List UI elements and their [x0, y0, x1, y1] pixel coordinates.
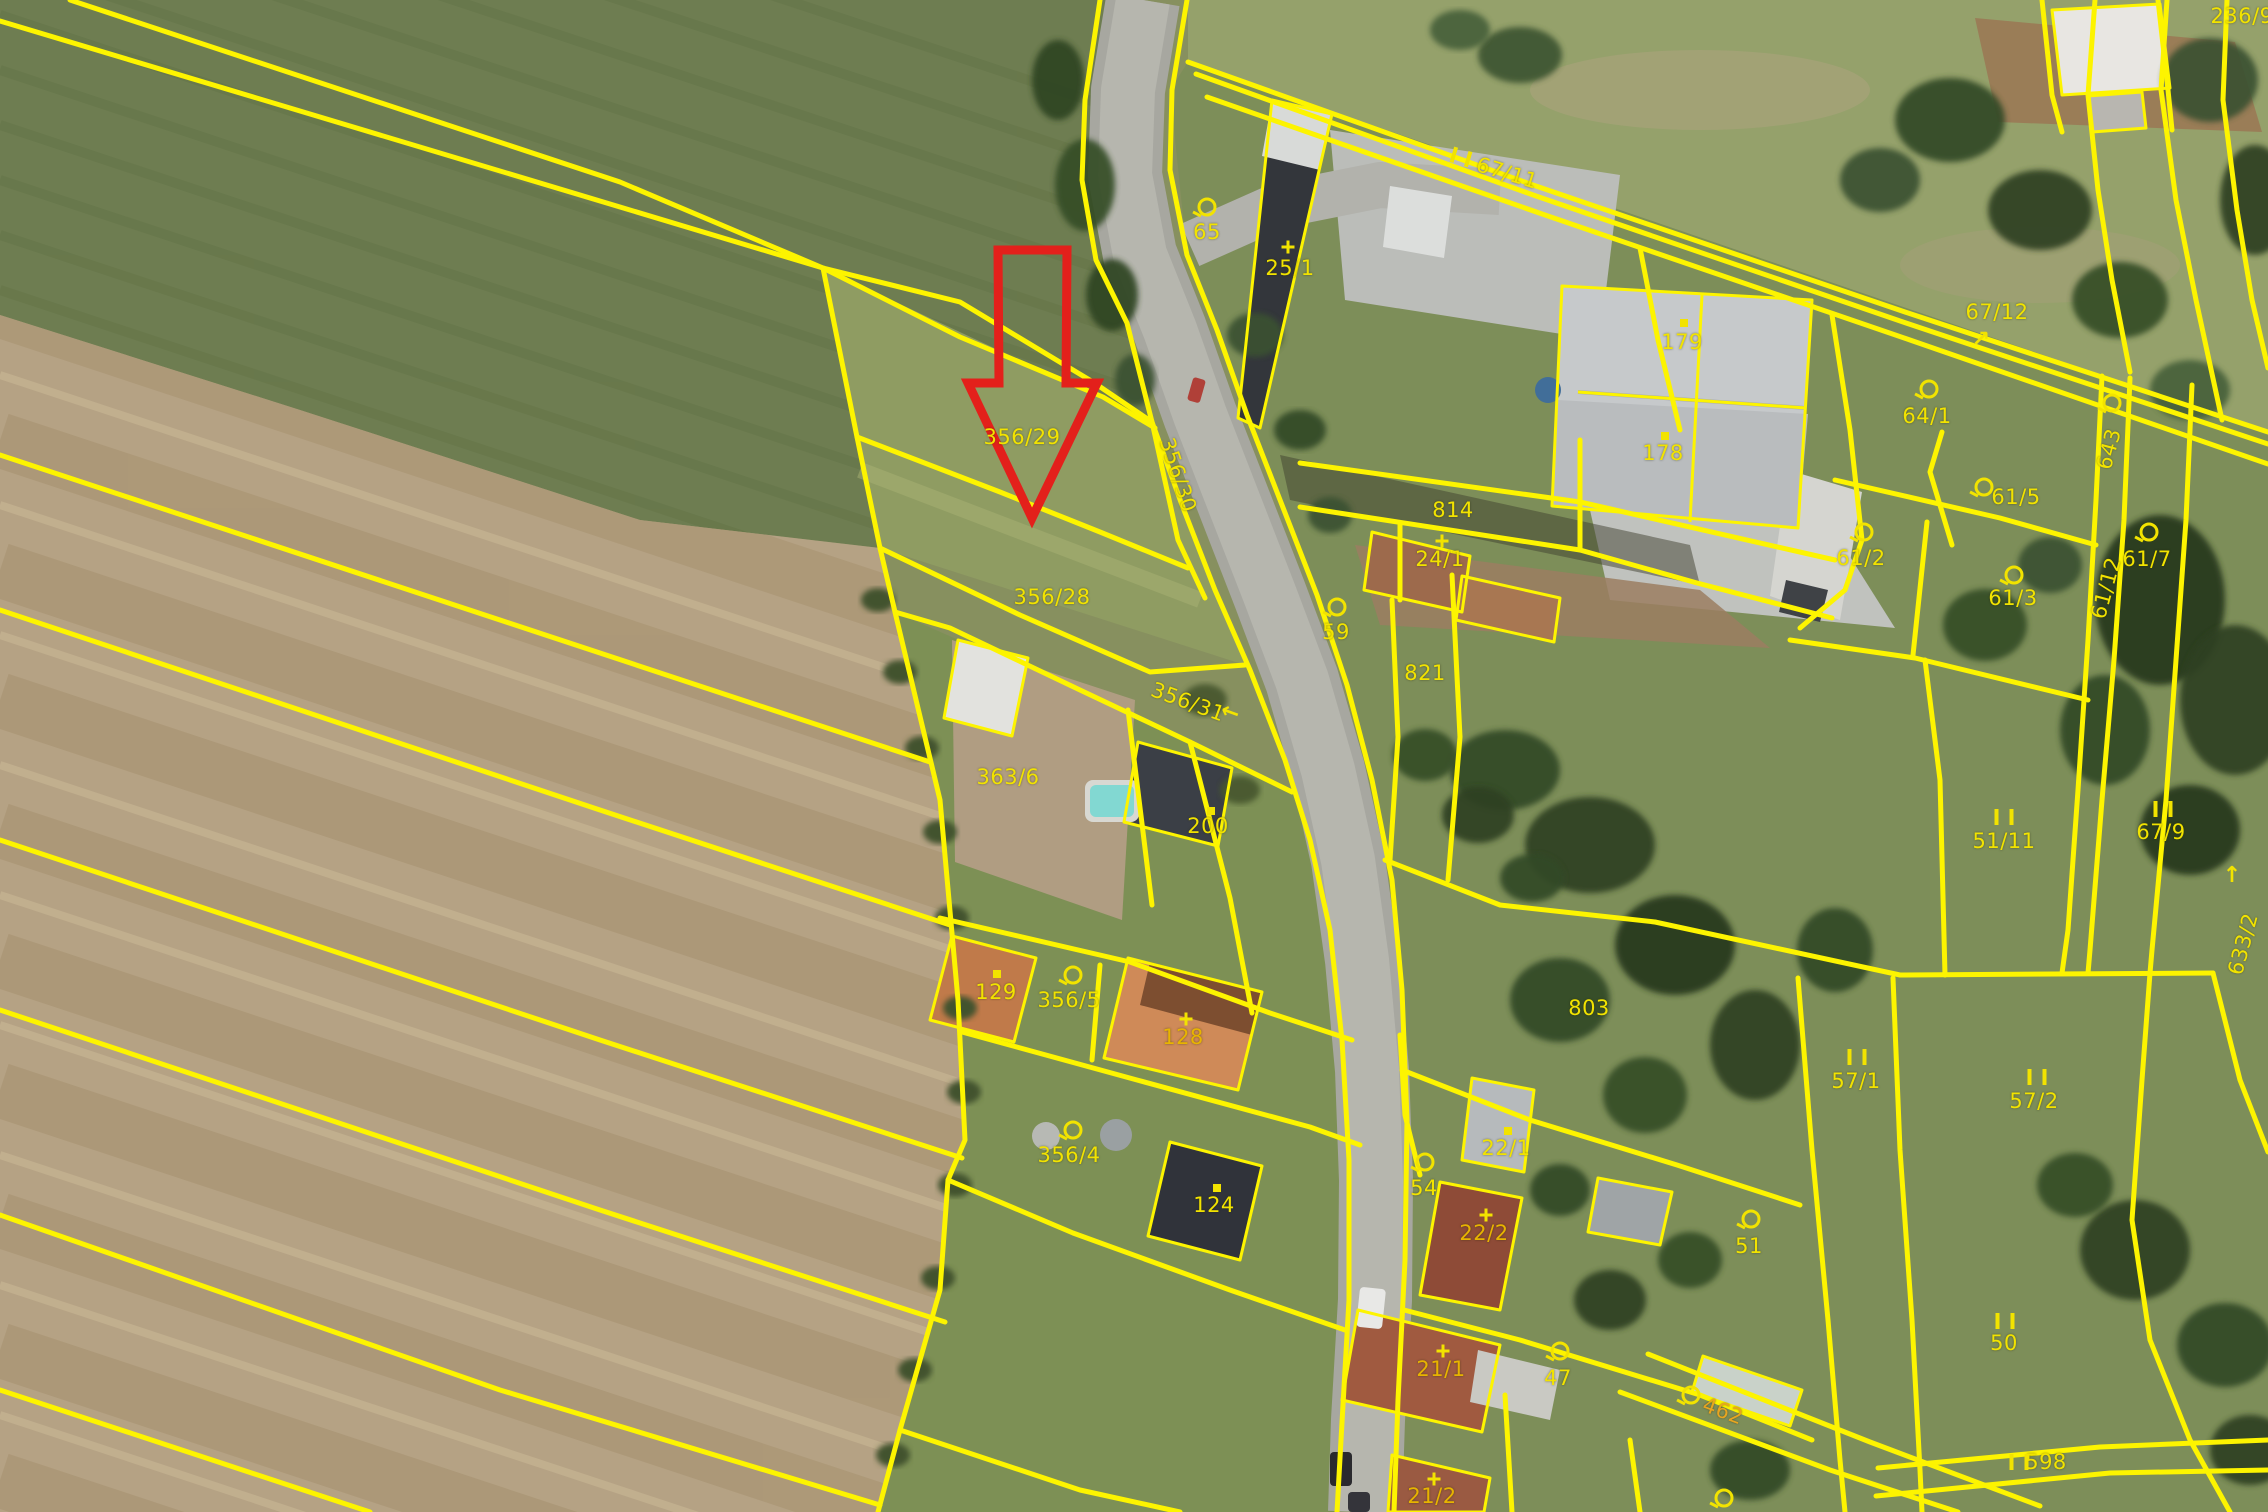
parcel-label: 67/9 — [2136, 820, 2185, 844]
parcel-label: 67/12 — [1965, 300, 2028, 324]
parcel-label: 61/2 — [1836, 546, 1885, 570]
map-symbol-plus — [1480, 1209, 1493, 1222]
map-symbol-pp — [1995, 809, 2014, 825]
parcel-label: 633/2 — [2223, 910, 2262, 977]
parcel-label: 61/7 — [2122, 547, 2171, 571]
parcel-label: 59 — [1322, 620, 1350, 644]
map-symbol-cb — [1715, 1489, 1734, 1508]
map-symbol-cb — [2005, 566, 2024, 585]
map-symbol-cb — [1742, 1210, 1761, 1229]
parcel-label: 61/5 — [1991, 485, 2040, 509]
map-symbol-pp — [1848, 1049, 1867, 1065]
parcel-label: 51 — [1735, 1234, 1763, 1258]
parcel-label: 124 — [1193, 1193, 1235, 1217]
parcel-label: 821 — [1404, 661, 1446, 685]
parcel-label: 64/1 — [1902, 404, 1951, 428]
parcel-label: 814 — [1432, 498, 1474, 522]
parcel-label: 643 — [2092, 426, 2126, 472]
map-symbol-cb — [1551, 1342, 1570, 1361]
map-symbol-cb — [1975, 478, 1994, 497]
map-symbol-cb — [1855, 523, 1874, 542]
map-symbol-cb — [1682, 1386, 1701, 1405]
map-symbol-cb — [1064, 1121, 1083, 1140]
map-symbol-cb — [1416, 1153, 1435, 1172]
parcel-label: 803 — [1568, 996, 1610, 1020]
map-symbol-cb — [1198, 198, 1217, 217]
parcel-label: 54 — [1410, 1176, 1438, 1200]
parcel-label: 356/4 — [1037, 1143, 1100, 1167]
parcel-label: 129 — [975, 980, 1017, 1004]
parcel-label: 356/31 — [1148, 678, 1228, 727]
parcel-label: 25/1 — [1265, 256, 1314, 280]
map-symbol-cb — [1064, 966, 1083, 985]
map-symbol-pp — [2028, 1069, 2047, 1085]
map-symbol-plus — [1437, 1345, 1450, 1358]
map-symbol-pp — [2010, 1454, 2029, 1470]
map-symbol-sq — [1680, 319, 1688, 327]
parcel-label: 57/1 — [1831, 1069, 1880, 1093]
map-symbol-sq — [1504, 1127, 1512, 1135]
parcel-labels-layer: 236/96525/167/1167/12↗64/164361/561/261/… — [0, 0, 2268, 1512]
map-symbol-pp — [1996, 1313, 2015, 1329]
map-symbol-plus — [1180, 1013, 1193, 1026]
map-symbol-pp — [1450, 147, 1473, 168]
parcel-label: 236/9 — [2210, 4, 2268, 28]
parcel-label: 21/1 — [1416, 1357, 1465, 1381]
map-symbol-sq — [1213, 1184, 1221, 1192]
parcel-label: 356/30 — [1155, 435, 1202, 516]
parcel-label: 47 — [1544, 1366, 1572, 1390]
parcel-label: 61/3 — [1988, 586, 2037, 610]
parcel-label: 363/6 — [976, 765, 1039, 789]
map-symbol-pp — [2154, 801, 2173, 817]
map-canvas: 236/96525/167/1167/12↗64/164361/561/261/… — [0, 0, 2268, 1512]
parcel-label: 178 — [1642, 441, 1684, 465]
parcel-label: 128 — [1162, 1025, 1204, 1049]
parcel-label: 462 — [1699, 1393, 1746, 1430]
map-symbol-sq — [1661, 432, 1669, 440]
parcel-label: 67/11 — [1473, 152, 1540, 193]
parcel-label: 179 — [1661, 330, 1703, 354]
parcel-label: 356/28 — [1014, 585, 1091, 609]
parcel-label: 57/2 — [2009, 1089, 2058, 1113]
map-symbol-plus — [1428, 1473, 1441, 1486]
parcel-label: 22/2 — [1459, 1221, 1508, 1245]
map-symbol-cb — [1328, 598, 1347, 617]
map-symbol-sq — [1207, 807, 1215, 815]
parcel-label: 200 — [1187, 814, 1229, 838]
map-symbol-sq — [993, 970, 1001, 978]
parcel-label: 356/5 — [1037, 988, 1100, 1012]
map-symbol-arrow-ne: ↗ — [1972, 329, 1990, 351]
parcel-label: 65 — [1193, 220, 1221, 244]
map-symbol-plus — [1282, 241, 1295, 254]
parcel-label: 50 — [1990, 1331, 2018, 1355]
parcel-label: 22/1 — [1481, 1136, 1530, 1160]
parcel-label: 21/2 — [1407, 1484, 1456, 1508]
parcel-label: 61/12 — [2086, 554, 2125, 621]
map-symbol-arrow-up: ↑ — [2223, 865, 2241, 887]
map-symbol-plus — [1436, 535, 1449, 548]
map-symbol-cb — [2140, 523, 2159, 542]
parcel-label: 356/29 — [984, 425, 1061, 449]
map-symbol-cb — [2103, 394, 2122, 413]
parcel-label: 24/1 — [1415, 547, 1464, 571]
map-symbol-cb — [1920, 380, 1939, 399]
parcel-label: 51/11 — [1972, 829, 2035, 853]
parcel-label: 598 — [2025, 1450, 2067, 1474]
